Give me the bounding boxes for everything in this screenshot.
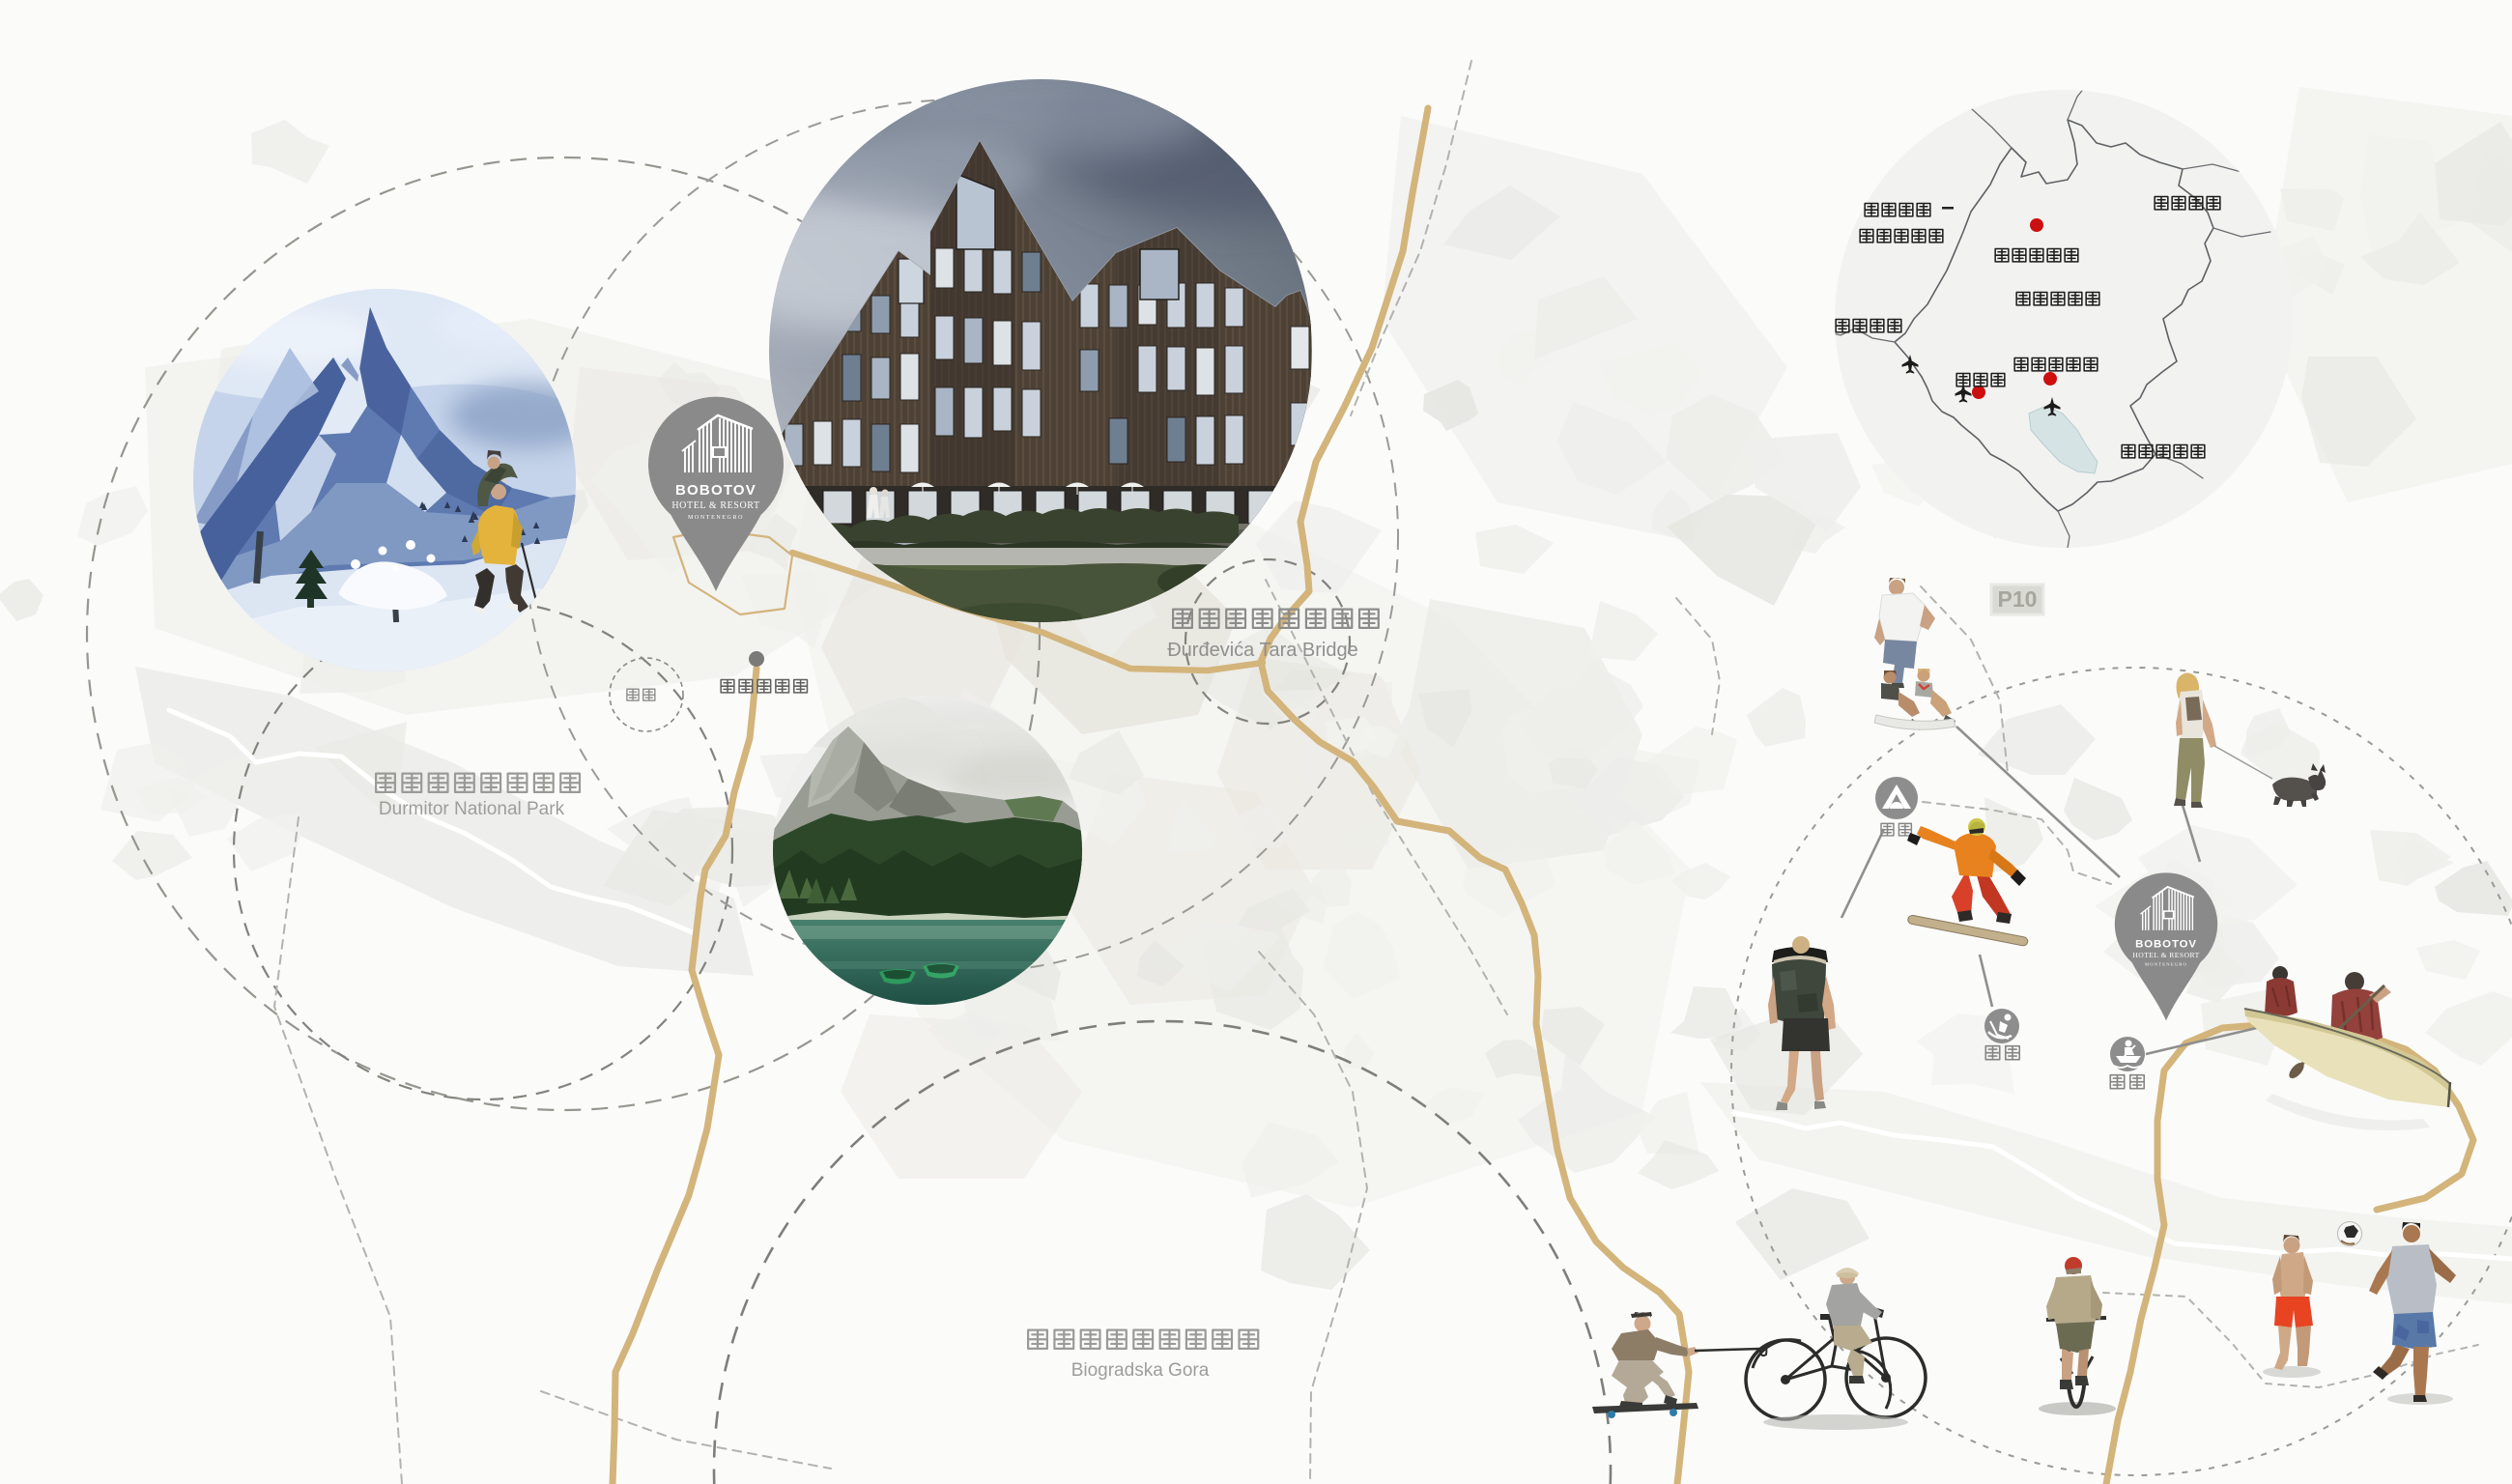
svg-text:P10: P10 [1998,586,2038,612]
svg-text:Biogradska Gora: Biogradska Gora [1071,1360,1210,1381]
svg-text:Durmitor National Park: Durmitor National Park [379,799,565,819]
svg-text:Đurđevića Tara Bridge: Đurđevića Tara Bridge [1167,640,1358,661]
